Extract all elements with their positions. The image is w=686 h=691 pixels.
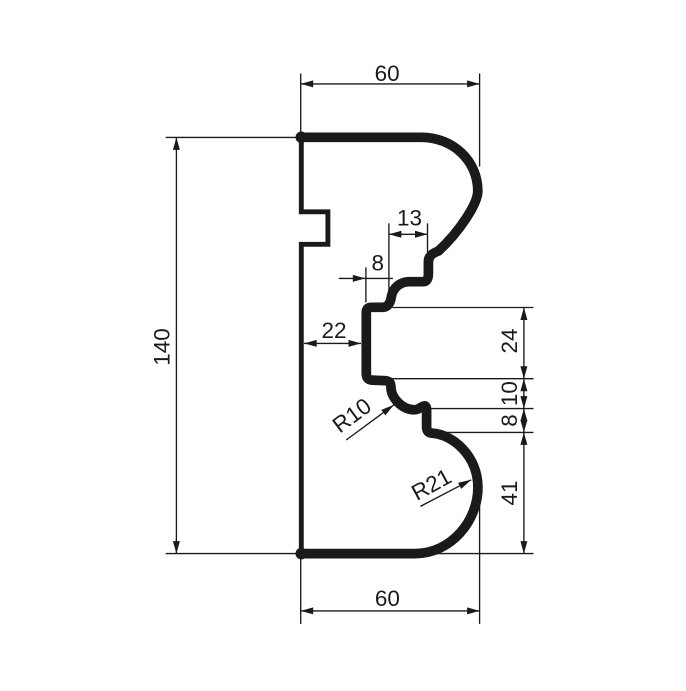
svg-text:22: 22 (321, 318, 346, 343)
svg-text:140: 140 (150, 328, 175, 366)
svg-text:60: 60 (375, 61, 400, 86)
svg-text:41: 41 (497, 480, 522, 505)
svg-text:8: 8 (372, 250, 385, 275)
svg-text:10: 10 (497, 381, 522, 406)
svg-text:60: 60 (375, 586, 400, 611)
svg-text:24: 24 (497, 328, 522, 353)
svg-text:13: 13 (397, 205, 422, 230)
svg-text:8: 8 (497, 414, 522, 427)
